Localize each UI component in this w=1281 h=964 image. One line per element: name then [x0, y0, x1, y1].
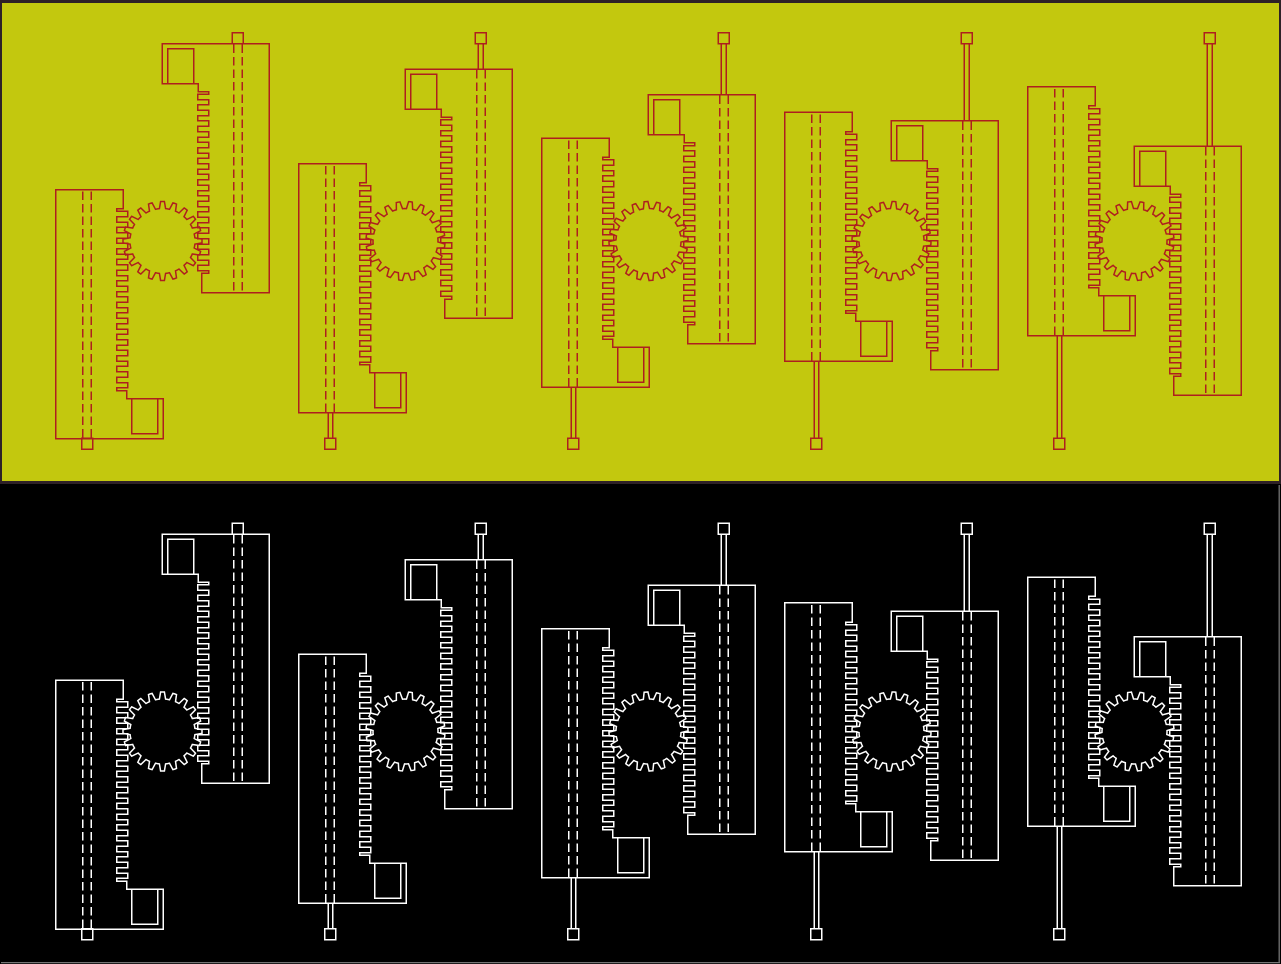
cad-render-area: [0, 0, 1281, 964]
mechanism-drawing-canvas: [0, 0, 1281, 964]
